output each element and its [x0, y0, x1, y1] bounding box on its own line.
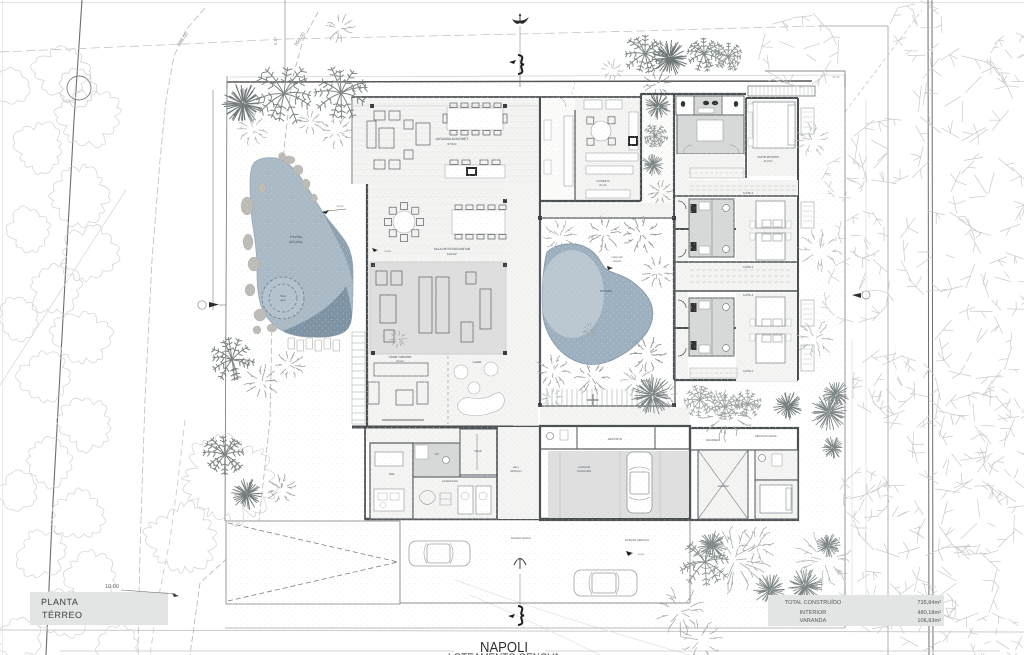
- svg-text:106,93m²: 106,93m²: [917, 618, 941, 624]
- svg-text:480,18m²: 480,18m²: [917, 610, 941, 616]
- svg-text:6.17: 6.17: [273, 36, 278, 45]
- svg-text:735,84m²: 735,84m²: [917, 600, 941, 606]
- svg-text:TOTAL CONSTRUÍDO: TOTAL CONSTRUÍDO: [785, 599, 842, 606]
- svg-text:TÉRREO: TÉRREO: [42, 610, 83, 620]
- svg-text:10.00: 10.00: [105, 584, 119, 590]
- svg-text:VARANDA: VARANDA: [800, 618, 827, 624]
- svg-text:INTERIOR: INTERIOR: [800, 610, 827, 616]
- svg-text:PLANTA: PLANTA: [41, 597, 78, 607]
- svg-text:41.35: 41.35: [832, 75, 840, 79]
